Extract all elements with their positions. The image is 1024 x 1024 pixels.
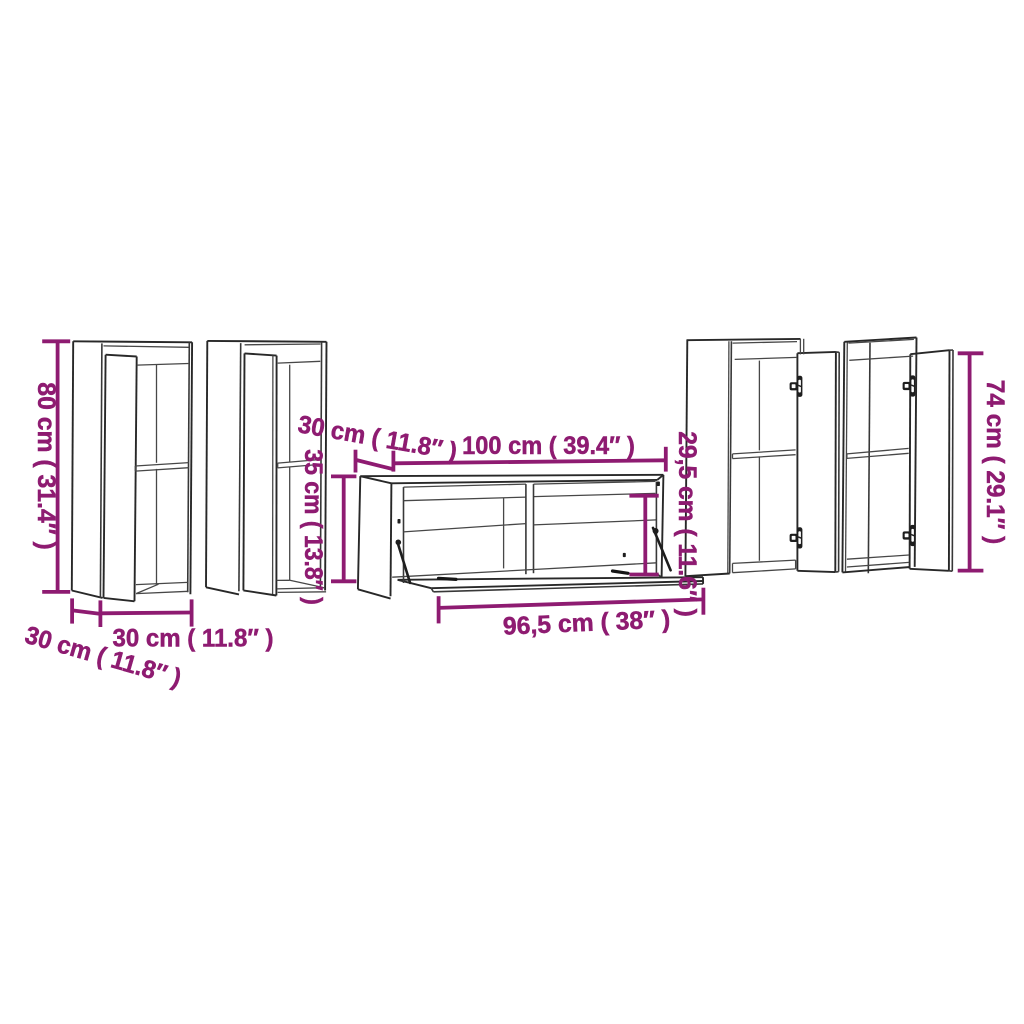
svg-text:30 cm ( 11.8″ ): 30 cm ( 11.8″ ) bbox=[113, 625, 274, 653]
svg-text:29,5 cm ( 11.6″ ): 29,5 cm ( 11.6″ ) bbox=[673, 431, 700, 617]
svg-text:35 cm ( 13.8″ ): 35 cm ( 13.8″ ) bbox=[299, 449, 327, 604]
svg-text:100 cm ( 39.4″ ): 100 cm ( 39.4″ ) bbox=[462, 433, 635, 461]
svg-text:74 cm ( 29.1″ ): 74 cm ( 29.1″ ) bbox=[981, 380, 1008, 544]
svg-text:80 cm ( 31.4″ ): 80 cm ( 31.4″ ) bbox=[32, 382, 60, 549]
